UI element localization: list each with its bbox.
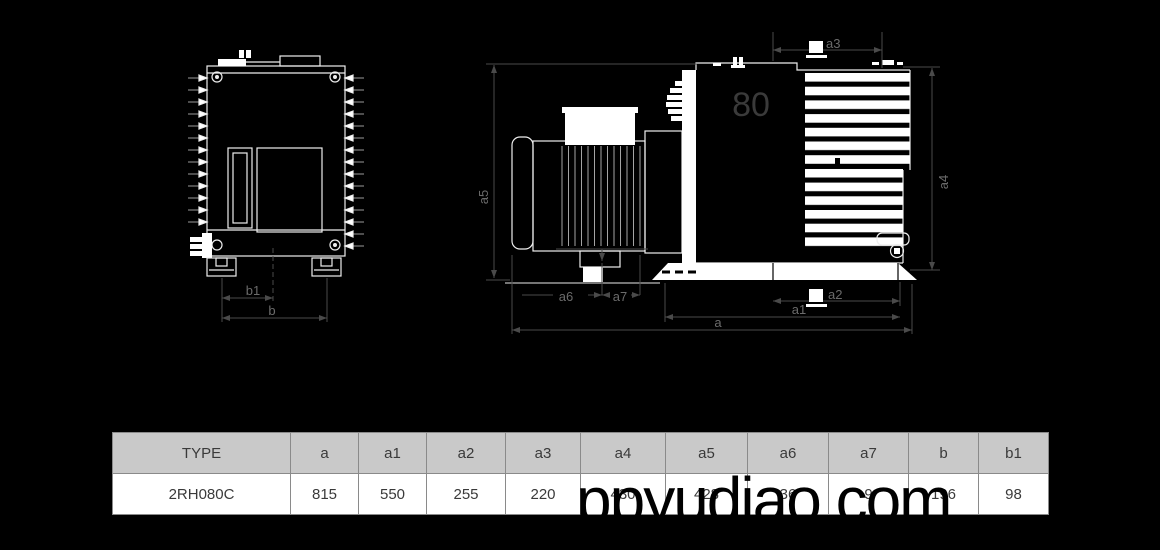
dim-label-a5: a5: [476, 190, 491, 204]
cell-a6: 36: [748, 474, 829, 515]
spec-sheet: b1 b: [0, 0, 1160, 550]
oil-window: [257, 148, 322, 232]
cell-a7: 9: [829, 474, 909, 515]
col-header-a1: a1: [359, 433, 427, 474]
cell-a: 815: [291, 474, 359, 515]
cell-a2: 255: [427, 474, 506, 515]
cell-b: 196: [909, 474, 979, 515]
base-plate: [652, 263, 917, 280]
top-terminal-box: [280, 56, 320, 66]
table-header-row: TYPE a a1 a2 a3 a4 a5 a6 a7 b b1: [113, 433, 1049, 474]
patch: [809, 41, 823, 53]
pump-fins-upper: [805, 73, 910, 164]
corner-bolt-icons: [212, 72, 340, 250]
dim-label-b: b: [268, 303, 275, 318]
drain-valve: [190, 233, 212, 258]
front-dimensions: b1 b: [222, 248, 327, 322]
col-header-a4: a4: [581, 433, 666, 474]
col-header-a: a: [291, 433, 359, 474]
dim-label-a2: a2: [828, 287, 842, 302]
front-view: [188, 50, 364, 276]
dim-label-a3: a3: [826, 36, 840, 51]
cell-type: 2RH080C: [113, 474, 291, 515]
dim-label-a: a: [714, 315, 722, 330]
dim-label-a7: a7: [613, 289, 627, 304]
cell-a3: 220: [506, 474, 581, 515]
patch: [806, 304, 827, 307]
front-feet: [207, 258, 341, 276]
col-header-b: b: [909, 433, 979, 474]
dim-label-a6: a6: [559, 289, 573, 304]
coupling-housing: [645, 131, 682, 253]
dim-label-a4: a4: [936, 175, 951, 189]
spec-table: TYPE a a1 a2 a3 a4 a5 a6 a7 b b1 2RH080C…: [112, 432, 1049, 515]
col-header-a3: a3: [506, 433, 581, 474]
cell-b1: 98: [979, 474, 1049, 515]
col-header-b1: b1: [979, 433, 1049, 474]
dim-label-b1: b1: [246, 283, 260, 298]
top-handle: [218, 50, 251, 66]
cell-a1: 550: [359, 474, 427, 515]
cell-a4: 430: [581, 474, 666, 515]
col-header-a6: a6: [748, 433, 829, 474]
dim-label-a1: a1: [792, 302, 806, 317]
pump-technical-drawing: b1 b: [0, 0, 1160, 420]
motor-foot: [583, 267, 603, 282]
col-header-a5: a5: [666, 433, 748, 474]
terminal-box: [562, 107, 638, 145]
table-row: 2RH080C 815 550 255 220 430 428 36 9 196…: [113, 474, 1049, 515]
patch: [809, 289, 823, 302]
col-header-a7: a7: [829, 433, 909, 474]
front-fins-left: [188, 75, 207, 225]
size-mark: 80: [732, 86, 770, 124]
cell-a5: 428: [666, 474, 748, 515]
fan-guard: [666, 81, 682, 121]
patch: [806, 55, 827, 58]
col-header-type: TYPE: [113, 433, 291, 474]
mounting-flange: [682, 70, 696, 263]
small-marker: [835, 158, 840, 165]
pump-fins-lower: [805, 169, 903, 247]
front-fins-right: [345, 75, 364, 249]
motor: [512, 137, 645, 282]
lifting-eye: [713, 57, 903, 68]
col-header-a2: a2: [427, 433, 506, 474]
